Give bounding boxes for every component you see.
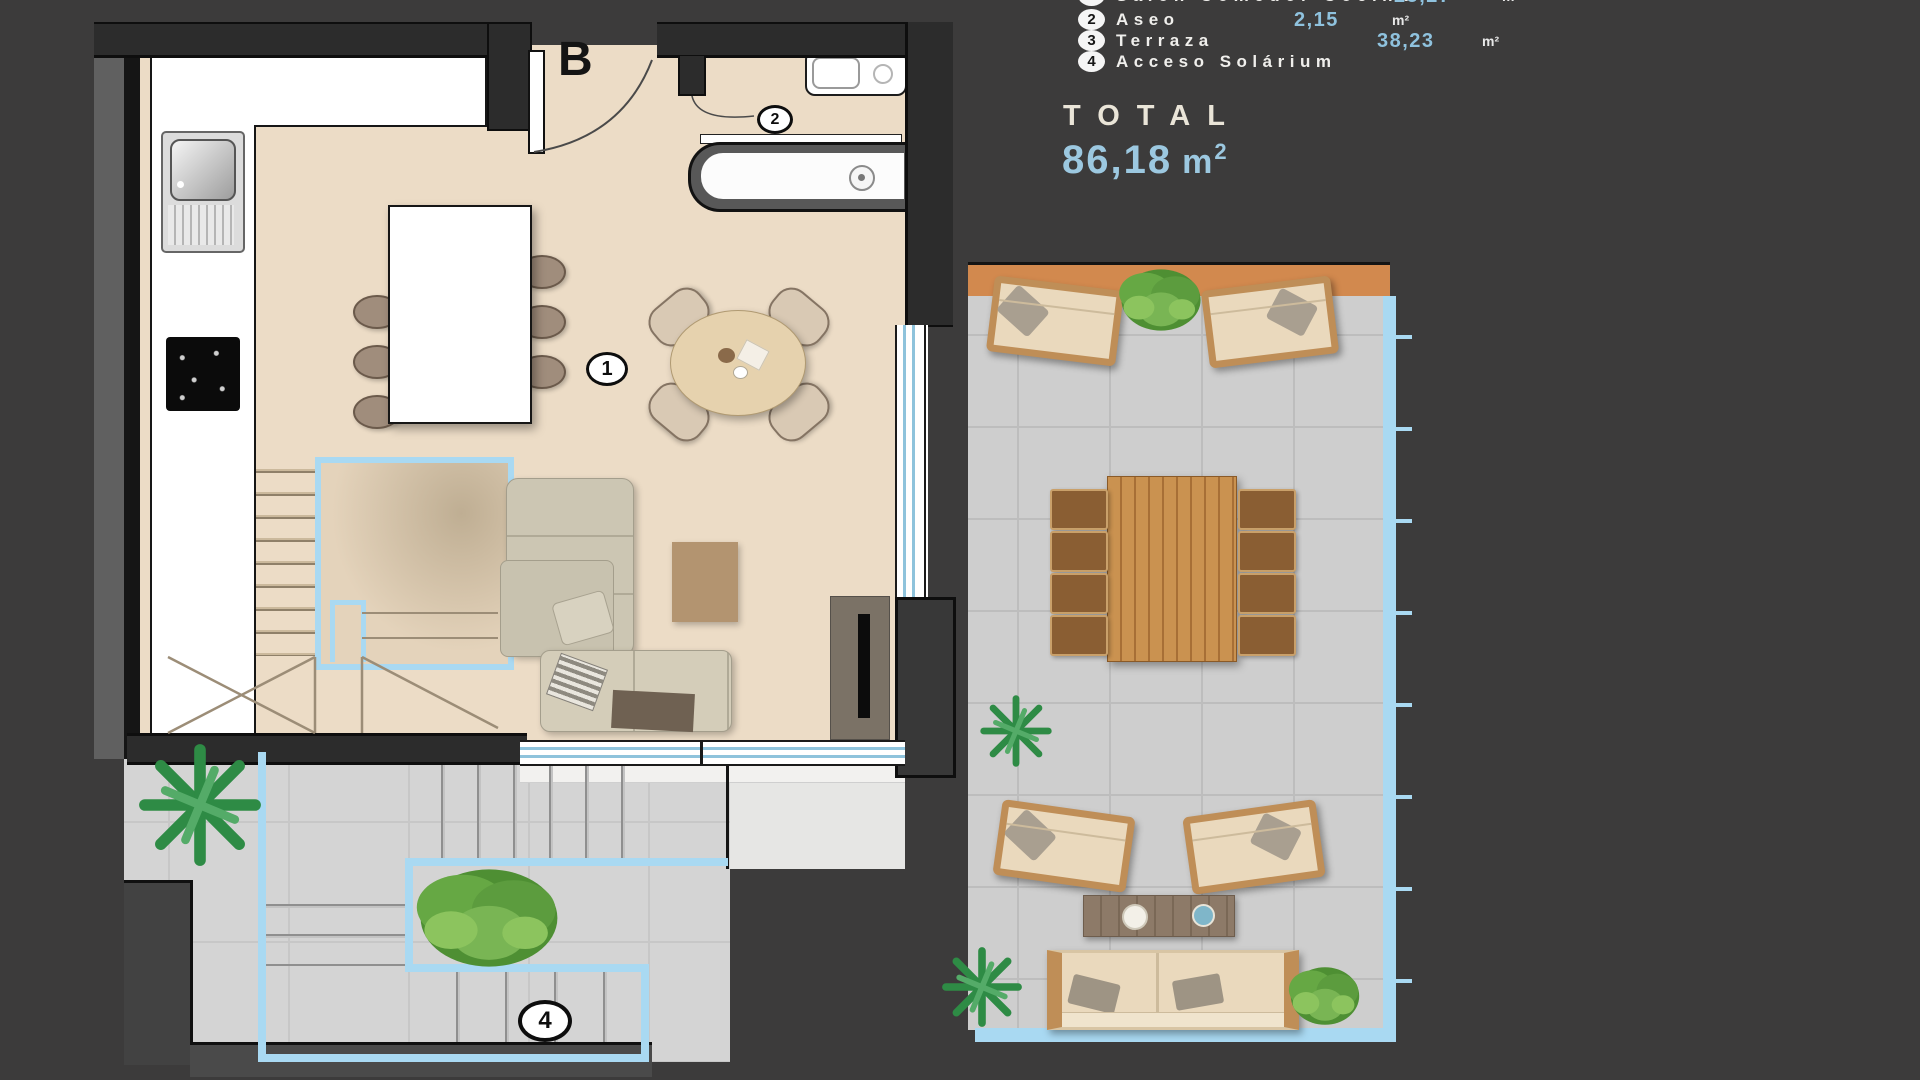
toilet-flush-dot — [873, 64, 893, 84]
kitchen-counter-top — [150, 58, 487, 127]
legend-row-aseo: 2 Aseo 2,15 m² — [1078, 9, 1558, 31]
legend-row-salon: 1 Salón Comedor Cocina 25,27 m² — [1078, 0, 1558, 7]
coffee-table-bowl — [1192, 904, 1215, 927]
bathtub — [688, 142, 906, 212]
total-unit-sup: 2 — [1214, 139, 1228, 164]
legend-value: 38,23 — [1377, 30, 1435, 53]
stairwell-void-notch — [330, 600, 366, 662]
table-centerpiece — [718, 348, 735, 363]
terrace-boundary-bottom — [975, 1028, 1396, 1042]
terrace-armchair-top-left — [986, 275, 1124, 366]
legend-bullet-4: 4 — [1078, 51, 1105, 72]
terrace-dining-table — [1107, 476, 1237, 662]
exterior-wall-bottom — [190, 1042, 652, 1077]
legend-value: 25,27 — [1394, 0, 1452, 8]
wall-bathroom-stub — [678, 56, 706, 96]
stairs-right-tread — [362, 612, 498, 614]
room-badge-solarium: 4 — [518, 1000, 572, 1042]
toilet-lid — [812, 57, 860, 89]
window-bottom-mullion — [700, 740, 703, 766]
bathtub-drain-dot — [858, 174, 865, 181]
kitchen-sink — [161, 131, 245, 253]
exterior-wall-left — [124, 880, 193, 1065]
kitchen-cooktop — [166, 337, 240, 411]
terrace-dining-chair — [1050, 531, 1108, 572]
legend-label: Terraza — [1116, 31, 1214, 51]
sink-tap-dot — [177, 181, 184, 188]
terrace-boundary-right — [1383, 296, 1396, 1042]
legend-label: Salón Comedor Cocina — [1116, 0, 1413, 6]
sink-drainboard — [168, 205, 234, 245]
legend-bullet-1: 1 — [1078, 0, 1105, 6]
tv-screen — [858, 614, 870, 718]
legend-row-terraza: 3 Terraza 38,23 m² — [1078, 30, 1558, 52]
cushion-pillow — [1003, 808, 1057, 862]
table-plate — [733, 366, 748, 379]
living-rug — [672, 542, 738, 622]
window-right-glass — [895, 325, 928, 597]
legend-unit: m² — [1482, 33, 1499, 49]
sofa-seat-strip — [1062, 1012, 1284, 1027]
cushion-pillow — [1265, 287, 1318, 337]
total-label: TOTAL — [1063, 100, 1242, 133]
window-bottom-glass — [520, 740, 905, 766]
sofa-pillow — [1067, 974, 1121, 1015]
legend-row-acceso-solarium: 4 Acceso Solárium — [1078, 51, 1558, 73]
legend-bullet-2: 2 — [1078, 9, 1105, 30]
wall-top-left — [94, 22, 490, 58]
terrace-dining-chair — [1238, 531, 1296, 572]
legend-label: Acceso Solárium — [1116, 52, 1336, 72]
round-dining-table — [670, 310, 806, 416]
cushion-pillow — [996, 284, 1050, 337]
wall-right-upper — [905, 22, 953, 327]
sofa-throw-blanket — [611, 690, 695, 732]
legend-label: Aseo — [1116, 10, 1180, 30]
coffee-table-plate — [1122, 904, 1148, 930]
terrace-dining-chair — [1050, 489, 1108, 530]
exterior-flight-top — [409, 762, 648, 860]
sofa-pillow — [1172, 973, 1224, 1011]
door-b-leaf — [528, 50, 545, 154]
room-badge-aseo: 2 — [757, 105, 793, 134]
terrace-dining-chair — [1238, 489, 1296, 530]
terrace-dining-chair — [1050, 615, 1108, 656]
sink-basin — [170, 139, 236, 201]
wall-bottom — [127, 733, 527, 765]
legend-unit: m² — [1502, 0, 1519, 4]
total-unit: m — [1182, 143, 1214, 181]
room-badge-living: 1 — [586, 352, 628, 386]
terrace-sofa — [1047, 950, 1299, 1030]
total-value: 86,18m2 — [1062, 138, 1229, 183]
terrace-armchair-top-right — [1201, 275, 1340, 368]
terrace-dining-chair — [1050, 573, 1108, 614]
terrace-dining-chair — [1238, 615, 1296, 656]
door-label-b: B — [558, 32, 593, 87]
legend-bullet-3: 3 — [1078, 30, 1105, 51]
stairs-right-tread — [362, 637, 498, 639]
wall-left — [94, 22, 140, 759]
kitchen-island — [388, 205, 532, 424]
cushion-pillow — [1249, 812, 1302, 861]
terrace-dining-chair — [1238, 573, 1296, 614]
exterior-step-edge-line — [726, 759, 729, 869]
legend-unit: m² — [1392, 12, 1409, 28]
exterior-flight-mid — [265, 878, 407, 966]
legend-value: 2,15 — [1294, 9, 1339, 32]
total-value-number: 86,18 — [1062, 138, 1172, 182]
wall-door-stub — [487, 22, 532, 131]
